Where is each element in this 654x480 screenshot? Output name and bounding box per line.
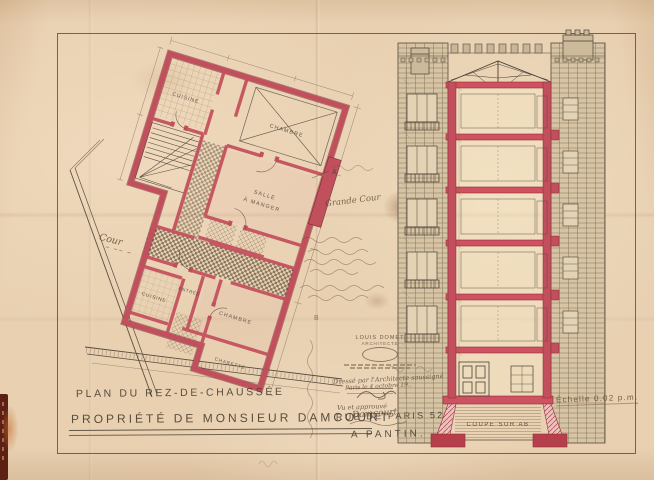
stamp-address-line — [344, 364, 416, 366]
note-squiggle-small — [330, 160, 380, 174]
architect-stamp: LOUIS DOMET ARCHITECTE — [336, 335, 424, 371]
room-label-chambre-top: CHAMBRE — [269, 123, 305, 139]
chimney-right — [563, 30, 593, 60]
floor-plan: CUISINE CHAMBRE SALLE À MANGER CHAMBRE E… — [40, 20, 380, 440]
city-label: A PANTIN. — [351, 428, 426, 440]
owner-signature-flourish — [348, 419, 408, 427]
room-label-entree: ENTRÉE — [178, 286, 201, 297]
stamp-title: ARCHITECTE — [336, 341, 424, 346]
section-caption: COUPE SUR AB — [466, 422, 529, 428]
scanned-drawing: CUISINE CHAMBRE SALLE À MANGER CHAMBRE E… — [0, 0, 654, 480]
plan-title: PLAN DU REZ-DE-CHAUSSÉE — [76, 386, 285, 400]
binding-stain — [3, 406, 18, 452]
stamp-oval-seal — [362, 347, 398, 362]
handwritten-notes — [298, 232, 398, 304]
section-marker-b: B — [314, 315, 319, 322]
plan-rotated-group: CUISINE CHAMBRE SALLE À MANGER CHAMBRE E… — [70, 33, 365, 396]
pencil-mark-bottom — [256, 455, 280, 469]
stamp-address-line-2 — [350, 367, 410, 369]
parapet-crenellation — [448, 44, 551, 53]
roof-truss — [448, 61, 551, 82]
ground-reference-line — [347, 388, 393, 394]
